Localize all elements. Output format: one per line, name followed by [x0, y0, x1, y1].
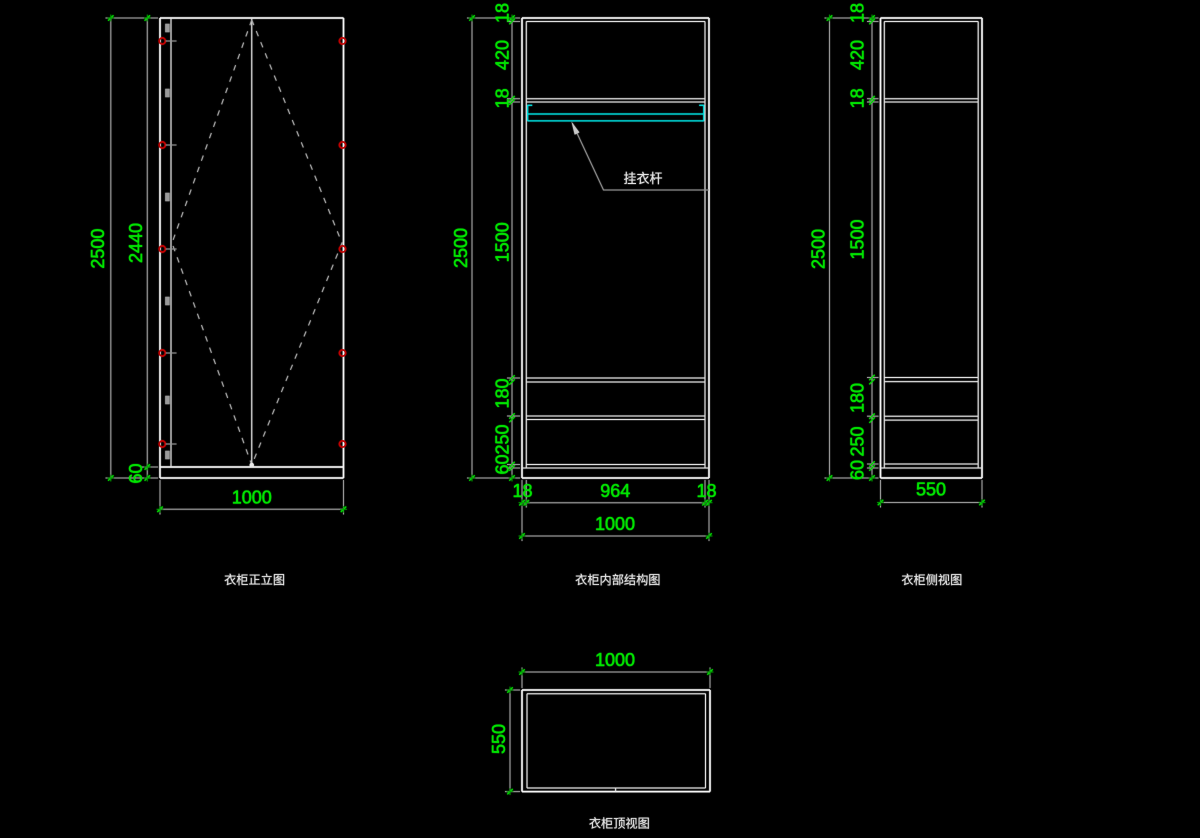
svg-text:18: 18 [847, 88, 867, 108]
svg-text:964: 964 [600, 481, 630, 501]
svg-text:2500: 2500 [88, 229, 108, 269]
svg-text:挂衣杆: 挂衣杆 [623, 171, 662, 186]
svg-text:1000: 1000 [232, 488, 272, 508]
svg-text:18: 18 [512, 481, 532, 501]
svg-text:18: 18 [696, 481, 716, 501]
svg-text:2440: 2440 [126, 223, 146, 263]
svg-text:550: 550 [489, 724, 509, 754]
svg-text:180: 180 [847, 383, 867, 413]
svg-text:60: 60 [126, 463, 146, 483]
svg-text:1000: 1000 [595, 514, 635, 534]
svg-text:250: 250 [492, 424, 512, 454]
svg-text:420: 420 [847, 40, 867, 70]
svg-text:60: 60 [492, 454, 512, 474]
svg-text:550: 550 [916, 480, 946, 500]
svg-text:18: 18 [847, 3, 867, 23]
svg-text:1000: 1000 [595, 650, 635, 670]
svg-text:420: 420 [492, 40, 512, 70]
svg-text:180: 180 [492, 378, 512, 408]
svg-text:60: 60 [847, 460, 867, 480]
svg-text:衣柜内部结构图: 衣柜内部结构图 [575, 572, 660, 587]
svg-text:2500: 2500 [808, 229, 828, 269]
svg-text:1500: 1500 [492, 222, 512, 262]
svg-text:250: 250 [847, 426, 867, 456]
svg-text:1500: 1500 [847, 219, 867, 259]
svg-text:18: 18 [492, 88, 512, 108]
svg-text:衣柜侧视图: 衣柜侧视图 [901, 572, 962, 587]
svg-text:2500: 2500 [451, 228, 471, 268]
svg-text:衣柜正立图: 衣柜正立图 [224, 572, 285, 587]
svg-text:18: 18 [492, 3, 512, 23]
svg-text:衣柜顶视图: 衣柜顶视图 [589, 816, 650, 831]
